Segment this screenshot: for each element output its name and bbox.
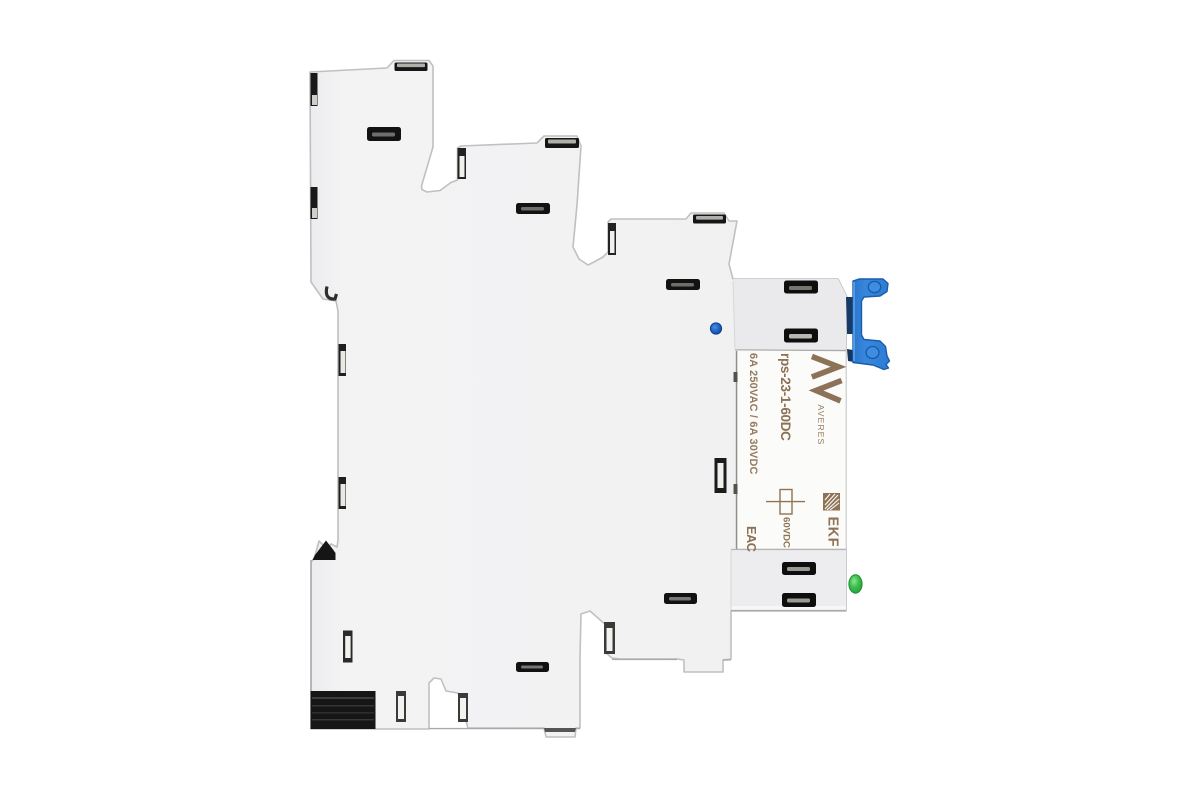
svg-text:EAC: EAC xyxy=(744,526,759,552)
svg-text:6A 250VAC / 6A 30VDC: 6A 250VAC / 6A 30VDC xyxy=(747,353,759,475)
svg-text:EKF: EKF xyxy=(825,517,841,547)
svg-text:rps-23-1-60DC: rps-23-1-60DC xyxy=(778,353,793,441)
svg-text:AVERES: AVERES xyxy=(816,405,826,446)
svg-text:60VDC: 60VDC xyxy=(781,517,792,548)
